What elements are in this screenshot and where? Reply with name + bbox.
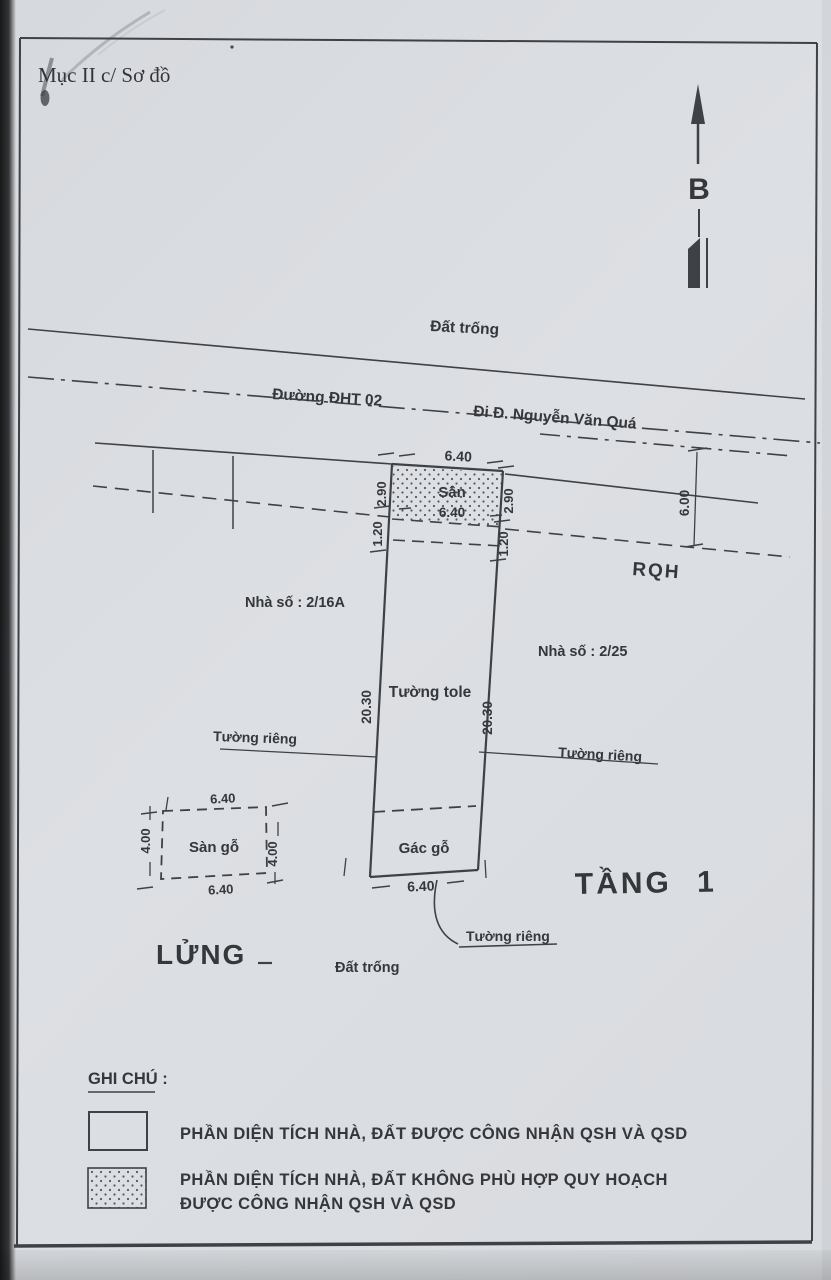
house-front-dashed-line: [393, 540, 502, 546]
mezzanine-width-top-dim: 6.40: [210, 790, 236, 806]
private-wall-right-label: Tường riêng: [558, 744, 643, 764]
north-label: B: [688, 173, 710, 206]
vacant-land-bottom-label: Đất trống: [335, 960, 399, 976]
vacant-land-top-label: Đất trống: [430, 318, 500, 339]
setback-left-dim: 1.20: [370, 521, 385, 546]
private-wall-callouts: Tường riêng Tường riêng Tường riêng: [213, 728, 658, 947]
planning-boundary-label: RQH: [632, 559, 682, 583]
attic-label: Gác gỗ: [399, 840, 450, 857]
site-plan-drawing: Mục II c/ Sơ đồ B Đất trống Đường ĐHT 02…: [0, 0, 831, 1280]
front-width-dim: 6.40: [444, 447, 472, 464]
mezzanine-depth-left-dim: 4.00: [138, 828, 153, 853]
mezzanine-depth-right-dim: 4.00: [265, 841, 280, 866]
legend-swatch-dotted: [88, 1168, 146, 1208]
north-compass: B: [688, 84, 710, 288]
side-depth-left-dim: 20.30: [359, 690, 374, 724]
main-plot: Sân Tường tole Gác gỗ 6.40 6.40 6.40 20.…: [344, 447, 516, 894]
legend-title: GHI CHÚ :: [88, 1069, 168, 1088]
private-wall-left-label: Tường riêng: [213, 728, 297, 747]
planning-width-dim: 6.00: [677, 490, 692, 516]
compass-pennant-icon: [688, 238, 700, 288]
road-top-edge-line: [28, 329, 805, 399]
mezzanine-title: LỬNG: [156, 938, 246, 970]
yard-inner-width-dim: 6.40: [439, 505, 465, 520]
scanned-survey-page: Mục II c/ Sơ đồ B Đất trống Đường ĐHT 02…: [0, 0, 831, 1280]
private-wall-bottom-label: Tường riêng: [466, 928, 550, 944]
mezzanine-width-bottom-dim: 6.40: [208, 881, 234, 897]
legend-swatch-solid: [89, 1112, 147, 1150]
wood-floor-label: Sàn gỗ: [189, 839, 239, 856]
floor-one-title: TẦNG 1: [575, 865, 718, 901]
street-direction-label: Đi Đ. Nguyễn Văn Quá: [473, 403, 638, 433]
legend: GHI CHÚ : PHẦN DIỆN TÍCH NHÀ, ĐẤT ĐƯỢC C…: [88, 1069, 688, 1213]
north-arrow-icon: [691, 84, 705, 124]
yard-depth-right-dim: 2.90: [501, 488, 516, 513]
yard-depth-left-dim: 2.90: [374, 481, 389, 506]
legend-item1-label: PHẦN DIỆN TÍCH NHÀ, ĐẤT ĐƯỢC CÔNG NHẬN Q…: [180, 1124, 688, 1143]
street-name-label: Đường ĐHT 02: [272, 386, 383, 410]
left-house-number: Nhà số : 2/16A: [245, 595, 345, 611]
wall-material-label: Tường tole: [389, 684, 472, 701]
attic-dashed-line: [373, 806, 476, 812]
legend-item2-line1: PHẦN DIỆN TÍCH NHÀ, ĐẤT KHÔNG PHÙ HỢP QU…: [180, 1170, 668, 1189]
page-border-frame: [14, 38, 817, 1246]
rear-width-dim: 6.40: [407, 878, 435, 895]
road-area: Đất trống Đường ĐHT 02 Đi Đ. Nguyễn Văn …: [28, 318, 820, 443]
legend-item2-line2: ĐƯỢC CÔNG NHẬN QSH VÀ QSD: [180, 1194, 456, 1213]
section-title: Mục II c/ Sơ đồ: [38, 63, 170, 87]
road-centerline: [28, 377, 820, 443]
yard-label: Sân: [438, 484, 466, 501]
right-house-number: Nhà số : 2/25: [538, 644, 627, 660]
side-depth-right-dim: 20.30: [480, 701, 495, 735]
setback-right-dim: 1.20: [496, 531, 511, 556]
mezzanine-floor: Sàn gỗ 6.40 6.40 4.00 4.00: [137, 790, 288, 897]
private-wall-bottom-leader: [434, 880, 458, 944]
